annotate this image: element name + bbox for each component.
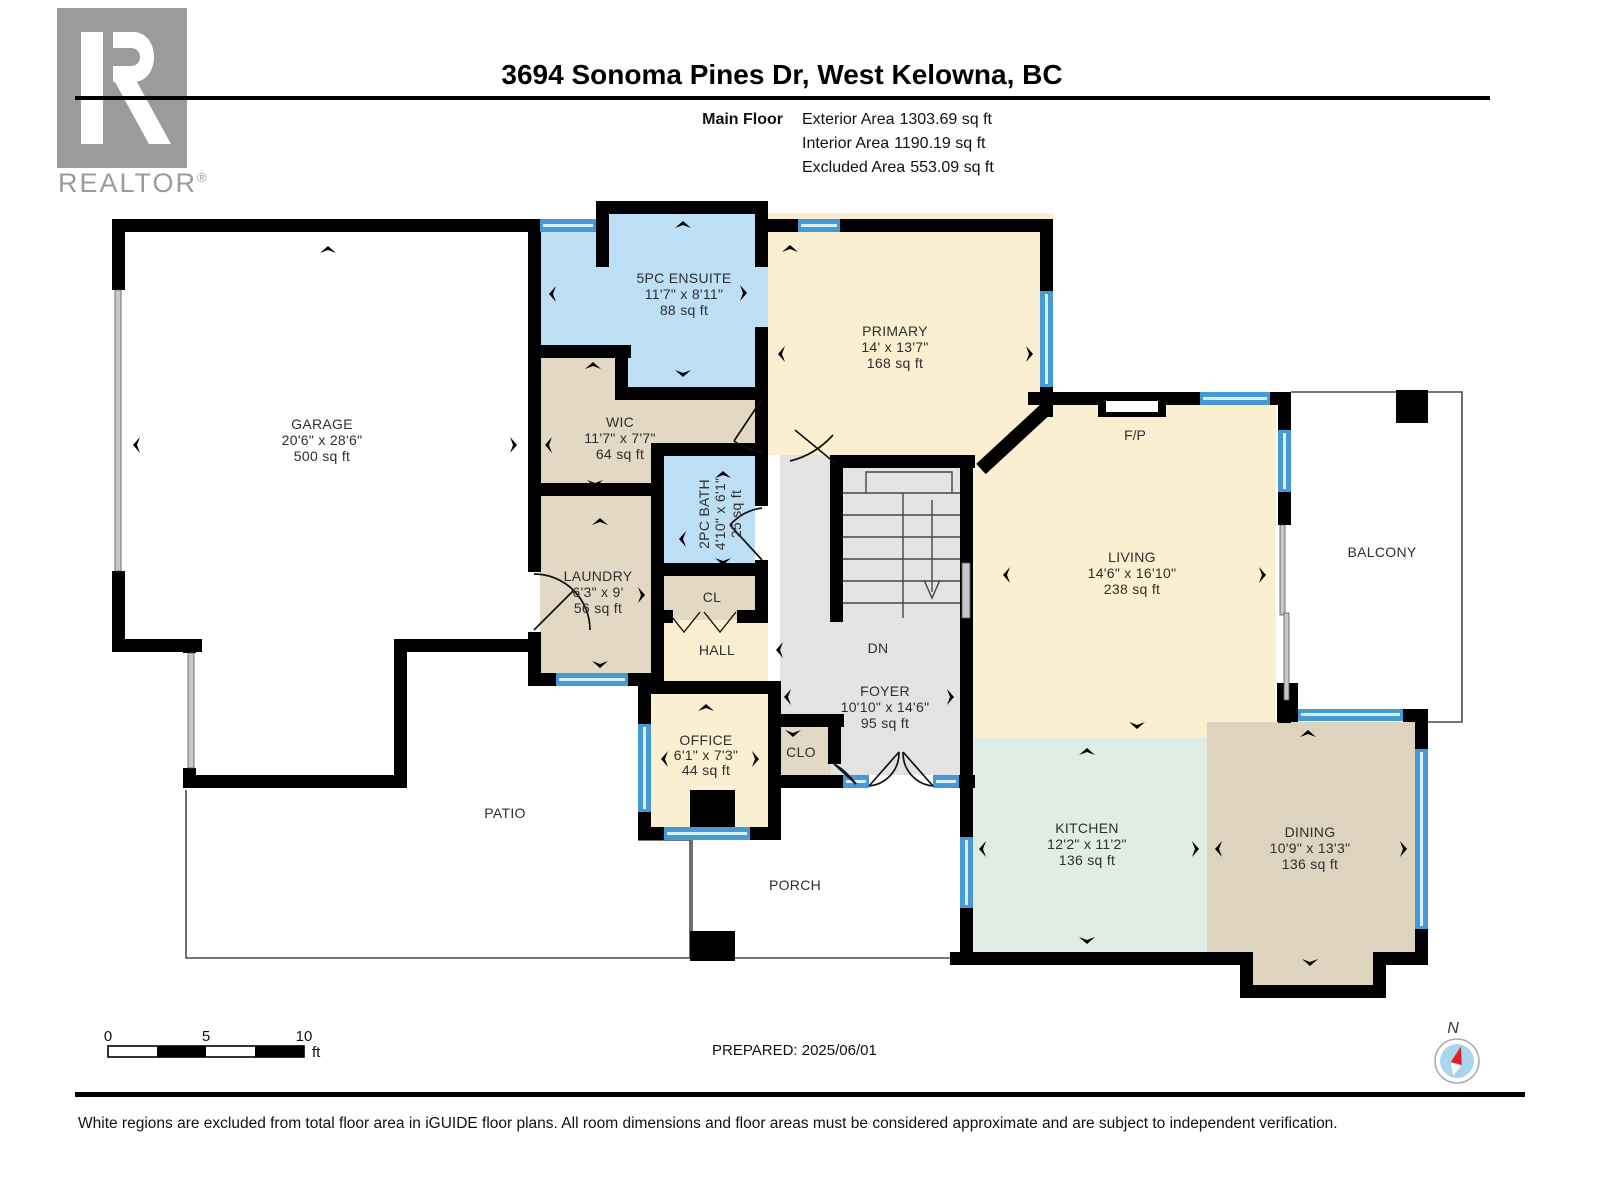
svg-text:95 sq ft: 95 sq ft xyxy=(861,715,909,731)
room-label-office: OFFICE 6'1" x 7'3" 44 sq ft xyxy=(674,732,739,778)
svg-text:5PC ENSUITE: 5PC ENSUITE xyxy=(636,270,731,286)
scale-unit: ft xyxy=(312,1044,321,1061)
scale-bar: 0 5 10 ft xyxy=(104,1028,321,1061)
floor-label: Main Floor xyxy=(702,111,783,128)
room-label-hall: HALL xyxy=(699,642,735,658)
svg-text:14' x 13'7": 14' x 13'7" xyxy=(861,339,928,355)
svg-text:14'6" x 16'10": 14'6" x 16'10" xyxy=(1088,565,1177,581)
svg-text:136 sq ft: 136 sq ft xyxy=(1059,852,1115,868)
svg-text:6'1" x 7'3": 6'1" x 7'3" xyxy=(674,747,739,763)
compass-north-label: N xyxy=(1447,1020,1459,1037)
room-label-patio: PATIO xyxy=(484,805,525,821)
svg-text:88 sq ft: 88 sq ft xyxy=(660,302,708,318)
svg-text:2PC BATH: 2PC BATH xyxy=(696,479,712,549)
svg-text:136 sq ft: 136 sq ft xyxy=(1282,856,1338,872)
realtor-logo: REALTOR® xyxy=(57,8,209,198)
svg-text:25 sq ft: 25 sq ft xyxy=(728,490,744,538)
floorplan-page: REALTOR® 3694 Sonoma Pines Dr, West Kelo… xyxy=(0,0,1600,1200)
front-door-gap xyxy=(869,775,933,788)
svg-text:20'6" x 28'6": 20'6" x 28'6" xyxy=(282,432,363,448)
footer-divider xyxy=(75,1092,1525,1097)
exterior-area: Exterior Area1303.69 sq ft xyxy=(802,111,993,128)
room-label-porch: PORCH xyxy=(769,877,821,893)
realtor-wordmark: REALTOR® xyxy=(58,168,209,198)
fireplace-label: F/P xyxy=(1124,427,1146,443)
svg-text:FOYER: FOYER xyxy=(860,683,910,699)
svg-text:500 sq ft: 500 sq ft xyxy=(294,448,350,464)
svg-text:10'9" x 13'3": 10'9" x 13'3" xyxy=(1270,840,1351,856)
svg-text:KITCHEN: KITCHEN xyxy=(1055,820,1119,836)
svg-text:LIVING: LIVING xyxy=(1108,549,1156,565)
svg-text:238 sq ft: 238 sq ft xyxy=(1104,581,1160,597)
svg-text:OFFICE: OFFICE xyxy=(679,732,732,748)
room-label-clo: CLO xyxy=(786,744,816,760)
floor-plan-canvas: REALTOR® 3694 Sonoma Pines Dr, West Kelo… xyxy=(0,0,1600,1200)
svg-text:PRIMARY: PRIMARY xyxy=(862,323,928,339)
svg-text:10'10" x 14'6": 10'10" x 14'6" xyxy=(841,699,930,715)
room-label-primary: PRIMARY 14' x 13'7" 168 sq ft xyxy=(861,323,928,371)
svg-text:6'3" x 9': 6'3" x 9' xyxy=(572,584,623,600)
svg-text:12'2" x 11'2": 12'2" x 11'2" xyxy=(1047,836,1127,852)
svg-text:DINING: DINING xyxy=(1285,824,1336,840)
svg-text:WIC: WIC xyxy=(606,414,634,430)
header-divider xyxy=(75,96,1490,100)
svg-text:LAUNDRY: LAUNDRY xyxy=(564,568,633,584)
svg-text:64 sq ft: 64 sq ft xyxy=(596,446,644,462)
svg-text:168 sq ft: 168 sq ft xyxy=(867,355,923,371)
svg-text:GARAGE: GARAGE xyxy=(291,416,353,432)
svg-text:11'7" x 7'7": 11'7" x 7'7" xyxy=(584,430,656,446)
scale-tick-10: 10 xyxy=(296,1028,313,1045)
page-title: 3694 Sonoma Pines Dr, West Kelowna, BC xyxy=(501,59,1062,90)
disclaimer-text: White regions are excluded from total fl… xyxy=(78,1115,1338,1132)
room-label-garage: GARAGE 20'6" x 28'6" 500 sq ft xyxy=(282,416,363,464)
scale-tick-5: 5 xyxy=(202,1028,210,1045)
room-label-balcony: BALCONY xyxy=(1347,544,1416,560)
svg-text:56 sq ft: 56 sq ft xyxy=(574,600,622,616)
svg-text:11'7" x 8'11": 11'7" x 8'11" xyxy=(645,286,724,302)
scale-tick-0: 0 xyxy=(104,1028,112,1045)
svg-text:44 sq ft: 44 sq ft xyxy=(682,762,730,778)
fireplace-notch xyxy=(1106,401,1158,412)
compass-icon: N xyxy=(1435,1020,1479,1083)
prepared-date: PREPARED: 2025/06/01 xyxy=(712,1042,877,1059)
excluded-area: Excluded Area553.09 sq ft xyxy=(802,159,994,176)
room-label-cl: CL xyxy=(703,589,722,605)
svg-text:4'10" x 6'1": 4'10" x 6'1" xyxy=(712,478,728,551)
room-label-kitchen: KITCHEN 12'2" x 11'2" 136 sq ft xyxy=(1047,820,1127,868)
stairs-dn-label: DN xyxy=(868,640,889,656)
interior-area: Interior Area1190.19 sq ft xyxy=(802,135,986,152)
